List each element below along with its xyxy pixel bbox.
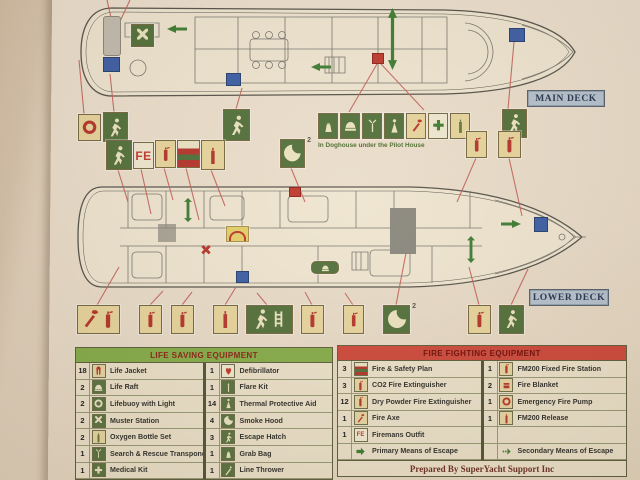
equipment-label: Medical Kit bbox=[107, 466, 203, 474]
equipment-label: Oxygen Bottle Set bbox=[107, 433, 203, 441]
lifebuoy-icon bbox=[92, 397, 106, 411]
equipment-row: 4Smoke Hood bbox=[206, 413, 333, 430]
muster-station-icon bbox=[92, 414, 106, 428]
equipment-label: Fire Blanket bbox=[515, 381, 627, 389]
equipment-label: Grab Bag bbox=[237, 450, 333, 458]
equipment-label: Life Raft bbox=[107, 383, 203, 391]
equipment-label: Smoke Hood bbox=[237, 417, 333, 425]
equipment-qty: 1 bbox=[206, 363, 220, 379]
emergency-fire-pump-sign bbox=[78, 114, 101, 141]
equipment-qty: 1 bbox=[484, 361, 498, 377]
firemans-outfit-icon: FE bbox=[354, 428, 368, 442]
equipment-row: 1FEFiremans Outfit bbox=[338, 427, 481, 444]
fire-extinguisher-sign bbox=[466, 131, 487, 158]
equipment-row: Secondary Means of Escape bbox=[484, 444, 627, 461]
prepared-by-footer: Prepared By SuperYacht Support Inc bbox=[338, 460, 626, 476]
escape-route-sign bbox=[499, 305, 524, 334]
life-saving-rows-left: 18Life Jacket2Life Raft2Lifebuoy with Li… bbox=[76, 363, 203, 479]
equipment-label: Secondary Means of Escape bbox=[515, 447, 627, 455]
equipment-label: Escape Hatch bbox=[237, 433, 333, 441]
equipment-row: 1FM200 Fixed Fire Station bbox=[484, 361, 627, 378]
sart-sign bbox=[362, 113, 382, 139]
equipment-marker-blue bbox=[236, 271, 249, 283]
equipment-qty: 3 bbox=[338, 378, 352, 394]
equipment-row: 2Fire Blanket bbox=[484, 378, 627, 395]
equipment-qty: 2 bbox=[484, 378, 498, 394]
equipment-qty: 14 bbox=[206, 396, 220, 412]
life-raft-sign bbox=[340, 113, 360, 139]
equipment-qty bbox=[484, 427, 498, 443]
fm200-station-icon bbox=[499, 362, 513, 376]
fire-safety-plan-icon bbox=[354, 362, 368, 376]
equipment-qty bbox=[484, 444, 498, 460]
muster-station-sign bbox=[131, 24, 154, 47]
life-raft-icon bbox=[92, 380, 106, 394]
equipment-label: Flare Kit bbox=[237, 383, 333, 391]
fire-axe-and-extinguisher-sign bbox=[77, 305, 120, 334]
equipment-marker-blue bbox=[509, 28, 525, 42]
equipment-label: CO2 Fire Extinguisher bbox=[369, 381, 481, 389]
equipment-label: Defibrillator bbox=[237, 367, 333, 375]
fire-station-x-mark bbox=[198, 243, 214, 259]
smoke-hood-icon bbox=[221, 414, 235, 428]
equipment-marker-blue bbox=[103, 57, 120, 72]
equipment-label: Lifebuoy with Light bbox=[107, 400, 203, 408]
smoke-hood-count: 2 bbox=[307, 137, 311, 144]
equipment-qty: 12 bbox=[338, 394, 352, 410]
equipment-row: 14Thermal Protective Aid bbox=[206, 396, 333, 413]
escape-route-sign bbox=[223, 109, 250, 141]
equipment-qty: 2 bbox=[76, 429, 90, 445]
flare-kit-icon bbox=[221, 380, 235, 394]
fire-extinguisher-sign bbox=[343, 305, 364, 334]
equipment-qty: 1 bbox=[338, 411, 352, 427]
equipment-qty: 1 bbox=[76, 463, 90, 479]
doghouse-note: In Doghouse under the Pilot House bbox=[318, 142, 488, 149]
equipment-row: 1Defibrillator bbox=[206, 363, 333, 380]
equipment-row: 1Search & Rescue Transponder bbox=[76, 446, 203, 463]
grab-bag-sign bbox=[318, 113, 338, 139]
oxygen-bottle-icon bbox=[92, 430, 106, 444]
equipment-qty: 4 bbox=[206, 413, 220, 429]
equipment-qty: 1 bbox=[484, 411, 498, 427]
equipment-label: Fire & Safety Plan bbox=[369, 365, 481, 373]
life-saving-rows-right: 1Defibrillator1Flare Kit14Thermal Protec… bbox=[206, 363, 333, 479]
defibrillator-icon bbox=[221, 364, 235, 378]
equipment-label: Line Thrower bbox=[237, 466, 333, 474]
line-thrower-icon bbox=[221, 463, 235, 477]
equipment-label: Thermal Protective Aid bbox=[237, 400, 333, 408]
defibrillator-sign bbox=[226, 226, 249, 242]
smoke-hood-count: 2 bbox=[412, 303, 416, 310]
equipment-row: 1Line Thrower bbox=[206, 463, 333, 480]
escape-hatch-icon bbox=[221, 430, 235, 444]
life-saving-equipment-table: LIFE SAVING EQUIPMENT 18Life Jacket2Life… bbox=[75, 347, 333, 480]
fm200-release-icon bbox=[499, 411, 513, 425]
life-raft-sign bbox=[311, 261, 339, 274]
equipment-row: 3Escape Hatch bbox=[206, 429, 333, 446]
equipment-label: Fire Axe bbox=[369, 414, 481, 422]
fire-fighting-rows-right: 1FM200 Fixed Fire Station2Fire Blanket1E… bbox=[484, 361, 627, 460]
equipment-label: Search & Rescue Transponder bbox=[107, 450, 203, 458]
equipment-marker-blue bbox=[226, 73, 241, 86]
equipment-row: 2Lifebuoy with Light bbox=[76, 396, 203, 413]
firemans-outfit-sign: FE bbox=[133, 142, 154, 169]
fire-fighting-table-title: FIRE FIGHTING EQUIPMENT bbox=[338, 346, 626, 361]
equipment-row: Primary Means of Escape bbox=[338, 444, 481, 461]
equipment-qty: 1 bbox=[484, 394, 498, 410]
equipment-row: 2Muster Station bbox=[76, 413, 203, 430]
fire-fighting-rows-left: 3Fire & Safety Plan3CO2 Fire Extinguishe… bbox=[338, 361, 481, 460]
equipment-qty: 2 bbox=[76, 413, 90, 429]
thermal-aid-icon bbox=[221, 397, 235, 411]
fire-safety-plan-sign bbox=[177, 140, 200, 168]
medical-kit-sign bbox=[428, 113, 448, 139]
fire-extinguisher-sign bbox=[139, 305, 162, 334]
fire-fighting-equipment-table: FIRE FIGHTING EQUIPMENT 3Fire & Safety P… bbox=[337, 345, 627, 477]
equipment-qty: 1 bbox=[206, 446, 220, 462]
equipment-row: 1Emergency Fire Pump bbox=[484, 394, 627, 411]
emergency-fire-pump-icon bbox=[499, 395, 513, 409]
fire-blanket-icon bbox=[499, 378, 513, 392]
equipment-marker-red bbox=[289, 187, 301, 197]
equipment-label: FM200 Fixed Fire Station bbox=[515, 365, 627, 373]
fire-extinguisher-sign bbox=[171, 305, 194, 334]
main-deck-label: MAIN DECK bbox=[527, 90, 605, 107]
equipment-qty: 1 bbox=[76, 446, 90, 462]
safety-plan-photo: FE 2 In Doghouse under the Pilot House bbox=[0, 0, 640, 480]
dry-powder-extinguisher-icon bbox=[354, 395, 368, 409]
equipment-row bbox=[484, 427, 627, 444]
equipment-row: 1Flare Kit bbox=[206, 380, 333, 397]
primary-escape-arrow-icon bbox=[355, 445, 367, 457]
grab-bag-icon bbox=[221, 447, 235, 461]
fire-extinguisher-sign bbox=[468, 305, 491, 334]
tender-outline bbox=[103, 16, 121, 56]
equipment-row: 1Medical Kit bbox=[76, 463, 203, 480]
equipment-label: Dry Powder Fire Extinguisher bbox=[369, 398, 481, 406]
medical-kit-icon bbox=[92, 463, 106, 477]
life-jacket-icon bbox=[92, 364, 106, 378]
blank-icon bbox=[500, 429, 512, 441]
equipment-qty: 1 bbox=[206, 463, 220, 479]
fire-axe-icon bbox=[354, 411, 368, 425]
fm200-release-sign bbox=[213, 305, 238, 334]
escape-hatch-sign bbox=[246, 305, 293, 334]
equipment-label: Firemans Outfit bbox=[369, 431, 481, 439]
fire-axe-sign bbox=[406, 113, 426, 139]
equipment-qty: 1 bbox=[206, 380, 220, 396]
equipment-row: 12Dry Powder Fire Extinguisher bbox=[338, 394, 481, 411]
equipment-marker-red bbox=[372, 53, 384, 64]
equipment-label: Emergency Fire Pump bbox=[515, 398, 627, 406]
equipment-row: 3CO2 Fire Extinguisher bbox=[338, 378, 481, 395]
thermal-protective-aid-sign bbox=[384, 113, 404, 139]
fire-extinguisher-sign bbox=[498, 131, 521, 158]
equipment-row: 3Fire & Safety Plan bbox=[338, 361, 481, 378]
equipment-label: Muster Station bbox=[107, 417, 203, 425]
equipment-qty: 3 bbox=[338, 361, 352, 377]
life-saving-table-title: LIFE SAVING EQUIPMENT bbox=[76, 348, 332, 363]
equipment-qty: 3 bbox=[206, 429, 220, 445]
co2-extinguisher-icon bbox=[354, 378, 368, 392]
lower-deck-label: LOWER DECK bbox=[529, 289, 609, 306]
escape-route-sign bbox=[103, 112, 128, 142]
fm200-release-sign bbox=[201, 140, 225, 170]
equipment-row: 2Life Raft bbox=[76, 380, 203, 397]
equipment-row: 1Fire Axe bbox=[338, 411, 481, 428]
fe-text: FE bbox=[135, 149, 151, 163]
equipment-label: Life Jacket bbox=[107, 367, 203, 375]
escape-route-sign bbox=[106, 140, 132, 170]
equipment-row: 2Oxygen Bottle Set bbox=[76, 429, 203, 446]
equipment-qty: 2 bbox=[76, 380, 90, 396]
equipment-qty: 18 bbox=[76, 363, 90, 379]
secondary-escape-arrow-icon bbox=[500, 445, 512, 457]
equipment-qty bbox=[338, 444, 352, 460]
equipment-marker-blue bbox=[534, 217, 548, 232]
smoke-hood-sign: 2 bbox=[383, 305, 410, 334]
equipment-qty: 1 bbox=[338, 427, 352, 443]
equipment-qty: 2 bbox=[76, 396, 90, 412]
fire-extinguisher-sign bbox=[155, 140, 176, 168]
equipment-row: 18Life Jacket bbox=[76, 363, 203, 380]
equipment-label: FM200 Release bbox=[515, 414, 627, 422]
equipment-row: 1FM200 Release bbox=[484, 411, 627, 428]
equipment-row: 1Grab Bag bbox=[206, 446, 333, 463]
sart-icon bbox=[92, 447, 106, 461]
fire-extinguisher-sign bbox=[301, 305, 324, 334]
smoke-hood-sign: 2 bbox=[280, 139, 305, 168]
equipment-label: Primary Means of Escape bbox=[369, 447, 481, 455]
